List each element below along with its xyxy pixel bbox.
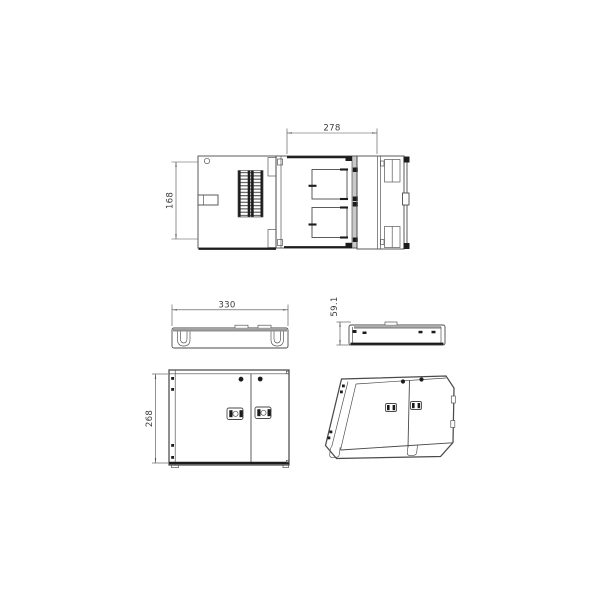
dim-label-side-height: 59.1: [330, 296, 340, 316]
top-view-left-door-panel: [198, 156, 276, 249]
top-view-right-door-panel: [357, 156, 410, 249]
front-view: 268: [145, 370, 289, 468]
mount-tab: [385, 322, 397, 325]
top-view: 278 168: [166, 124, 410, 250]
hinge-bracket: [268, 230, 276, 248]
door-handle-right: [411, 402, 422, 410]
corner-clip: [278, 159, 283, 165]
fastener: [419, 331, 423, 334]
keyhole-icon: [204, 158, 209, 163]
dimension-side-height: 59.1: [330, 296, 351, 345]
hinge-pin: [342, 385, 345, 388]
dim-label-front-height: 268: [145, 410, 155, 427]
lock-icon: [239, 377, 244, 382]
hinge-pin: [171, 456, 174, 459]
dimension-top-depth: 168: [166, 162, 198, 239]
lock-icon: [401, 379, 405, 383]
splice-tray-cutout-top: [309, 170, 349, 200]
fastener: [353, 330, 357, 333]
top-view-body: [276, 156, 358, 249]
door-handle-left: [386, 404, 397, 412]
hinge-pin: [340, 391, 343, 394]
splice-tray-cutout-bottom: [309, 208, 349, 238]
isometric-view: [326, 376, 456, 459]
lock-icon: [419, 377, 423, 381]
hinge-bracket: [268, 158, 276, 177]
latch-tab: [403, 193, 410, 205]
dimension-base-width: 330: [172, 300, 288, 326]
door-handle: [198, 195, 218, 205]
dimension-front-height: 268: [145, 374, 168, 463]
latch-tab: [451, 421, 455, 428]
hinge-pin: [171, 444, 174, 447]
dimension-top-width: 278: [287, 124, 377, 155]
fastener: [363, 332, 367, 335]
side-view: 59.1: [330, 296, 445, 345]
mount-tab: [258, 325, 271, 328]
hinge-bracket: [381, 227, 401, 248]
hinge-knuckle: [404, 157, 410, 163]
keyhole-slot-left: [178, 332, 191, 347]
door-handle-left: [227, 408, 243, 420]
hinge-pin: [328, 437, 331, 440]
hinge-pin: [171, 388, 174, 391]
bottom-view: 330: [172, 300, 288, 348]
mount-tab: [235, 325, 248, 328]
dim-label-top-width: 278: [323, 124, 340, 134]
enclosure-outline: [326, 376, 455, 459]
door-split-line: [408, 381, 410, 448]
fastener: [432, 331, 436, 334]
hinge-bracket: [381, 160, 401, 183]
latch-tab: [451, 396, 455, 403]
vent-grille: [238, 171, 263, 218]
dim-label-base-width: 330: [218, 300, 235, 310]
hinge-pin: [171, 377, 174, 380]
lock-icon: [258, 377, 263, 382]
hinge-pin: [330, 431, 333, 434]
corner-clip: [278, 240, 283, 246]
keyhole-slot-right: [271, 332, 284, 347]
foot-slot: [407, 445, 417, 455]
technical-drawing: 278 168 330: [0, 0, 600, 600]
drawing-canvas: 278 168 330: [0, 0, 600, 600]
hinge-knuckle: [404, 243, 410, 249]
door-handle-right: [255, 407, 271, 419]
dim-label-top-depth: 168: [166, 192, 176, 209]
